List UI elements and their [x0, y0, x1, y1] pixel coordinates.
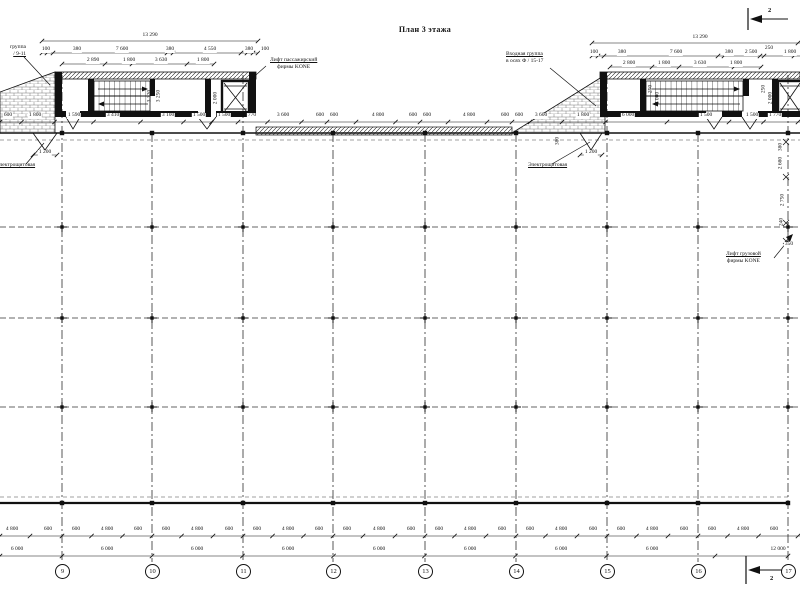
column-marker: [786, 131, 790, 135]
column-marker: [605, 225, 608, 228]
axis-bubble: 13: [418, 564, 433, 579]
column-marker: [514, 316, 517, 319]
column-marker: [786, 225, 789, 228]
column-marker: [241, 501, 245, 505]
dimension-label: 1 800: [122, 58, 136, 64]
column-marker: [605, 131, 609, 135]
dimension-label: 600: [514, 113, 524, 119]
dimension-label-vertical: 380: [555, 136, 561, 146]
dimension-label-vertical: 240: [779, 217, 785, 227]
dimension-label: 1 200: [584, 150, 598, 156]
dimension-label-vertical: 2 750: [780, 193, 786, 207]
dimension-label: 6 000: [372, 547, 386, 553]
dimension-label: 3 600: [276, 113, 290, 119]
dimension-label: 6 000: [554, 547, 568, 553]
dimension-label-vertical: 2 000: [213, 91, 219, 105]
dimension-label: 600: [769, 527, 779, 533]
column-marker: [786, 316, 789, 319]
dimension-label: 7 600: [669, 50, 683, 56]
axis-bubble: 17: [781, 564, 796, 579]
dimension-label: 6 000: [621, 113, 635, 119]
dimension-label: 4 800: [281, 527, 295, 533]
section-marker-label: 2: [770, 575, 773, 582]
label-elevator-freight: Лифт грузовойфирмы KONE: [726, 251, 761, 264]
dimension-label: 600: [342, 527, 352, 533]
dimension-label: 600: [3, 113, 13, 119]
column-marker: [150, 131, 154, 135]
dimension-label: 4 800: [100, 527, 114, 533]
dimension-label: 4 800: [372, 527, 386, 533]
door-swing: [198, 117, 216, 129]
column-marker: [150, 316, 153, 319]
dimension-label: 600: [314, 527, 324, 533]
dimension-label: 600: [406, 527, 416, 533]
dimension-label-vertical: 380: [778, 142, 784, 152]
column-marker: [605, 405, 608, 408]
section-marker-label: 2: [768, 7, 771, 14]
column-marker: [514, 131, 518, 135]
label-electrical-right: Электрощитовая: [528, 162, 567, 169]
dimension-label-vertical: 3 250: [156, 89, 162, 103]
dimension-label: 250: [764, 46, 774, 52]
dimension-label: 600: [161, 527, 171, 533]
dimension-label: 4 800: [736, 527, 750, 533]
dimension-label: 600: [500, 113, 510, 119]
column-marker: [150, 501, 154, 505]
column-marker: [331, 405, 334, 408]
section-marker-bottom: [746, 556, 786, 584]
dimension-label: 600: [408, 113, 418, 119]
column-marker: [150, 405, 153, 408]
dimension-label-vertical: 250: [206, 84, 212, 94]
column-marker: [423, 501, 427, 505]
axis-bubble: 15: [600, 564, 615, 579]
column-marker: [60, 405, 63, 408]
dimension-label: 600: [588, 527, 598, 533]
dimension-label: 3 630: [154, 58, 168, 64]
dimension-label: 6 000: [645, 547, 659, 553]
dimension-label: 600: [224, 527, 234, 533]
dimension-label: 1 200: [38, 150, 52, 156]
dimension-label: 770: [247, 113, 257, 119]
column-marker: [241, 131, 245, 135]
dimension-label: 4 800: [463, 527, 477, 533]
column-marker: [331, 131, 335, 135]
dimension-label: 1 500: [192, 113, 206, 119]
dimension-label: 1 800: [729, 61, 743, 67]
dimension-label: 1 500: [217, 113, 231, 119]
dimension-label: 1 800: [783, 50, 797, 56]
dimension-label: 4 800: [371, 113, 385, 119]
dimension-label: 1 800: [28, 113, 42, 119]
dimension-label: 13 290: [141, 33, 158, 39]
column-marker: [60, 501, 64, 505]
dimension-label: 600: [616, 527, 626, 533]
dimension-label: 600: [71, 527, 81, 533]
dimension-label: 100: [41, 47, 51, 53]
drawing-title: План 3 этажа: [399, 25, 451, 34]
dimension-label: 600: [315, 113, 325, 119]
label-electrical-left: Электрощитовая: [0, 162, 35, 169]
column-marker: [696, 501, 700, 505]
dimension-label: 4 800: [645, 527, 659, 533]
column-marker: [331, 501, 335, 505]
column-marker: [514, 405, 517, 408]
column-marker: [605, 316, 608, 319]
dimension-label: 600: [329, 113, 339, 119]
dimension-label: 1 770: [768, 113, 782, 119]
dimension-label: 1 800: [576, 113, 590, 119]
column-marker: [150, 225, 153, 228]
dimension-label-vertical: 2 680: [778, 156, 784, 170]
door-swing: [706, 117, 722, 129]
column-marker: [696, 405, 699, 408]
column-marker: [696, 225, 699, 228]
dimension-label: 6 000: [10, 547, 24, 553]
column-marker: [514, 501, 518, 505]
label-entrance-right: Входная группав осях Ф / 15-17: [506, 51, 543, 64]
dimension-label: 12 000: [769, 547, 786, 553]
dimension-label: 380: [165, 47, 175, 53]
dimension-label: 380: [617, 50, 627, 56]
door-swing: [742, 117, 758, 129]
column-marker: [786, 405, 789, 408]
dimension-label: 600: [422, 113, 432, 119]
dimension-label: 3 100: [161, 113, 175, 119]
axis-bubble: 11: [236, 564, 251, 579]
dimension-label: 600: [434, 527, 444, 533]
dimension-label: 600: [252, 527, 262, 533]
dimension-label: 1 800: [196, 58, 210, 64]
dimension-label: 1 500: [745, 113, 759, 119]
axis-bubble: 12: [326, 564, 341, 579]
door-swing: [580, 133, 602, 150]
dimension-label-vertical: 2 000: [768, 91, 774, 105]
column-marker: [60, 316, 63, 319]
dimension-label: 4 550: [203, 47, 217, 53]
dimension-label: 1 800: [657, 61, 671, 67]
axis-bubble: 9: [55, 564, 70, 579]
floor-plan-sheet: План 3 этажа 13 2901003807 6003804 55038…: [0, 0, 800, 600]
column-marker: [514, 225, 517, 228]
dimension-label: 100: [260, 47, 270, 53]
dimension-label: 3 600: [534, 113, 548, 119]
column-marker: [423, 131, 427, 135]
dimension-label: 600: [707, 527, 717, 533]
column-marker: [241, 225, 244, 228]
dimension-label: 380: [72, 47, 82, 53]
dimension-label: 1 500: [699, 113, 713, 119]
dimension-label: 4 800: [5, 527, 19, 533]
door-swing: [33, 133, 57, 150]
column-marker: [423, 405, 426, 408]
dimension-label: 6 000: [100, 547, 114, 553]
entrance-ramp-right: [512, 75, 605, 133]
column-marker: [241, 405, 244, 408]
label-elevator-passenger: Лифт пассажирскийфирмы KONE: [270, 57, 317, 70]
dimension-label: 3 410: [106, 113, 120, 119]
dimension-label: 1 590: [67, 113, 81, 119]
dimension-label: 380: [724, 50, 734, 56]
dimension-label: 6 000: [190, 547, 204, 553]
dimension-label: 2 800: [622, 61, 636, 67]
dimension-label: 600: [525, 527, 535, 533]
column-marker: [241, 316, 244, 319]
column-marker: [60, 131, 64, 135]
axis-bubble: 16: [691, 564, 706, 579]
dimension-label-vertical: 2 000: [655, 91, 661, 105]
dimension-label: 7 600: [115, 47, 129, 53]
dimension-label: 2 890: [86, 58, 100, 64]
dimension-label-vertical: 250: [648, 84, 654, 94]
dimension-label-vertical: 3 320: [147, 89, 153, 103]
dimension-label: 4 800: [190, 527, 204, 533]
dimension-label: 380: [244, 47, 254, 53]
dimension-label: 2 500: [744, 50, 758, 56]
dimension-label-vertical: 250: [761, 84, 767, 94]
column-marker: [331, 316, 334, 319]
column-marker: [423, 225, 426, 228]
label-entrance-left: группа/ 9-11: [10, 44, 26, 57]
dimension-label: 600: [497, 527, 507, 533]
column-marker: [786, 501, 790, 505]
dimension-label: 4 800: [462, 113, 476, 119]
door-swing: [66, 117, 80, 129]
axis-bubble: 10: [145, 564, 160, 579]
column-marker: [696, 131, 700, 135]
dimension-label: 13 290: [691, 35, 708, 41]
column-marker: [696, 316, 699, 319]
dimension-label: 6 000: [463, 547, 477, 553]
column-marker: [60, 225, 63, 228]
axis-bubble: 14: [509, 564, 524, 579]
dimension-label: 350: [784, 242, 794, 248]
dimension-label: 100: [589, 50, 599, 56]
dimension-label: 4 800: [554, 527, 568, 533]
dimension-label: 6 000: [281, 547, 295, 553]
plan-linework: [0, 0, 800, 600]
dimension-label: 600: [133, 527, 143, 533]
column-marker: [605, 501, 609, 505]
dimension-label: 600: [43, 527, 53, 533]
dimension-label: 3 630: [693, 61, 707, 67]
column-marker: [331, 225, 334, 228]
column-marker: [423, 316, 426, 319]
dimension-label: 600: [679, 527, 689, 533]
